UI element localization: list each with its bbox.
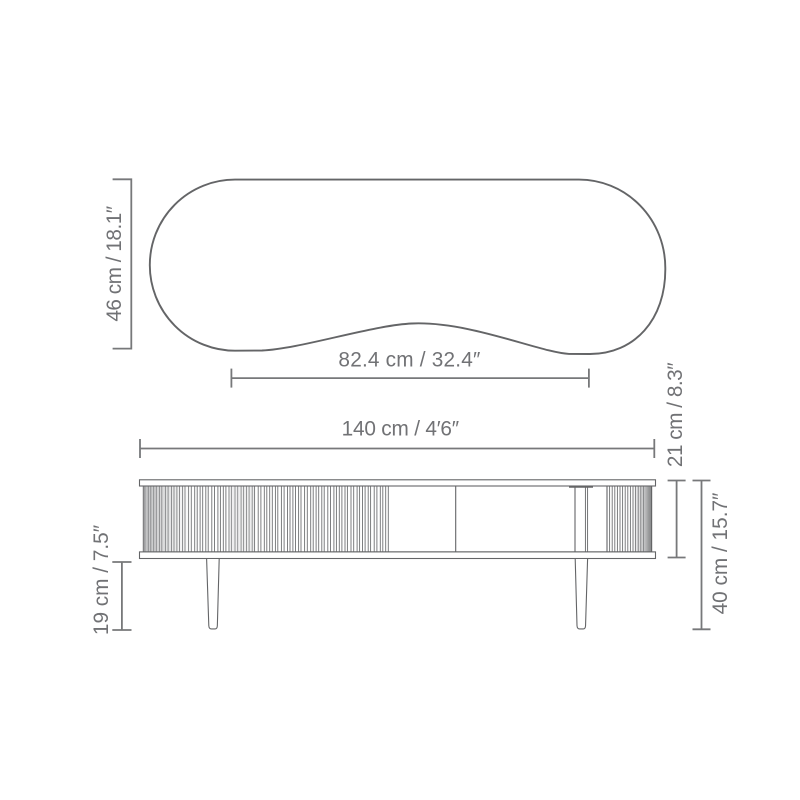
svg-text:21 cm / 8.3″: 21 cm / 8.3″ (664, 363, 687, 467)
svg-text:82.4 cm / 32.4″: 82.4 cm / 32.4″ (338, 349, 480, 372)
svg-text:40 cm / 15.7″: 40 cm / 15.7″ (709, 493, 732, 615)
svg-text:19 cm / 7.5″: 19 cm / 7.5″ (90, 525, 113, 635)
svg-text:140 cm / 4′6″: 140 cm / 4′6″ (342, 418, 459, 441)
svg-text:46 cm / 18.1″: 46 cm / 18.1″ (103, 206, 126, 321)
